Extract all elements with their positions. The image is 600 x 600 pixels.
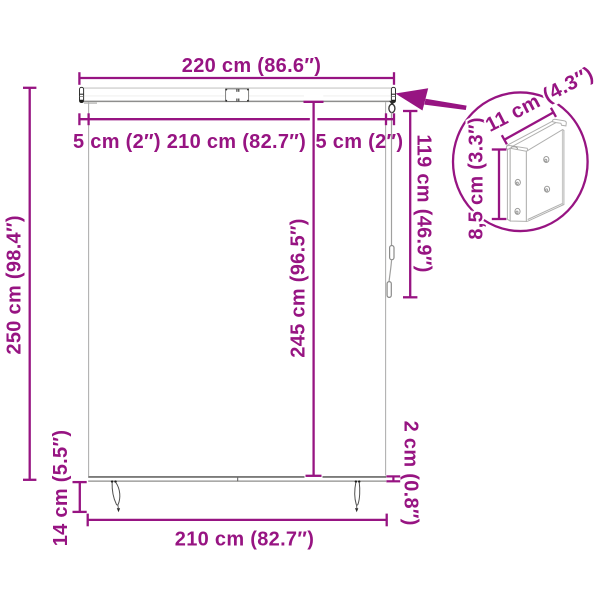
svg-text:5 cm (2″): 5 cm (2″) [316,131,404,153]
svg-text:210 cm (82.7″): 210 cm (82.7″) [175,529,314,551]
svg-text:5 cm (2″) 210 cm (82.7″): 5 cm (2″) 210 cm (82.7″) [73,131,306,153]
svg-text:245 cm (96.5″): 245 cm (96.5″) [287,218,309,357]
svg-text:14 cm (5.5″): 14 cm (5.5″) [50,430,72,547]
svg-text:220 cm (86.6″): 220 cm (86.6″) [182,55,321,77]
svg-text:250 cm (98.4″): 250 cm (98.4″) [4,215,26,354]
svg-text:11 cm (4.3″): 11 cm (4.3″) [482,63,597,137]
svg-text:119 cm (46.9″): 119 cm (46.9″) [412,134,434,272]
svg-text:2 cm (0.8″): 2 cm (0.8″) [400,421,422,526]
svg-text:8,5 cm (3.3″): 8,5 cm (3.3″) [466,117,488,239]
